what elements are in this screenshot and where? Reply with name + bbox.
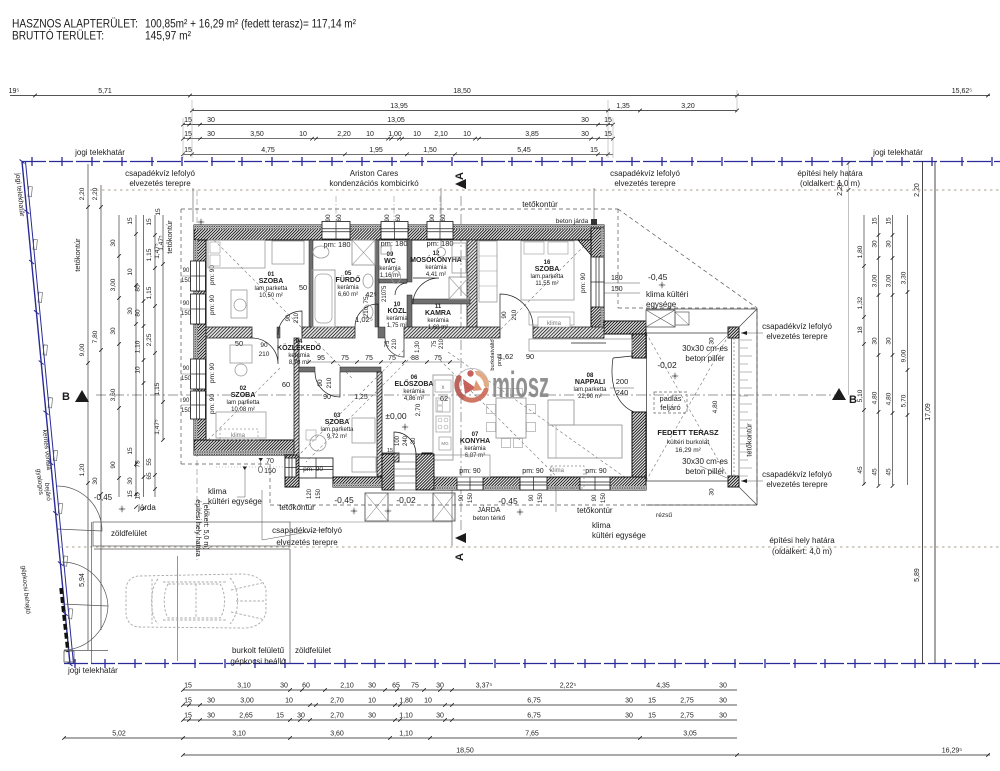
svg-text:30: 30 (127, 477, 134, 485)
svg-text:30: 30 (368, 713, 376, 720)
svg-text:2,70: 2,70 (330, 698, 344, 705)
svg-text:18,50: 18,50 (453, 88, 471, 95)
svg-text:90: 90 (286, 314, 292, 321)
svg-text:16,29⁵: 16,29⁵ (942, 748, 963, 755)
svg-text:ELŐSZOBA: ELŐSZOBA (395, 379, 434, 388)
svg-text:10: 10 (368, 698, 376, 705)
svg-text:90: 90 (260, 342, 268, 349)
svg-text:9,00: 9,00 (79, 343, 86, 356)
svg-text:15,62⁵: 15,62⁵ (952, 88, 973, 95)
svg-text:pm: 90: pm: 90 (585, 468, 607, 475)
svg-text:klima: klima (550, 468, 565, 474)
svg-text:10: 10 (424, 698, 432, 705)
svg-text:45: 45 (872, 468, 879, 476)
svg-text:MOSÓKONYHA: MOSÓKONYHA (410, 255, 462, 264)
svg-text:3,00: 3,00 (240, 698, 254, 705)
svg-text:3,20: 3,20 (681, 103, 695, 110)
svg-text:2,70: 2,70 (330, 713, 344, 720)
svg-text:15: 15 (146, 218, 153, 226)
svg-text:7,65: 7,65 (525, 731, 539, 738)
svg-text:30: 30 (368, 683, 376, 690)
svg-text:10: 10 (135, 366, 142, 374)
svg-text:5,70: 5,70 (901, 394, 908, 407)
svg-text:1,32: 1,32 (857, 296, 864, 309)
svg-text:padlás: padlás (659, 394, 681, 403)
svg-text:50: 50 (299, 283, 307, 292)
svg-text:90: 90 (183, 398, 190, 404)
svg-text:csapadékvíz lefolyó: csapadékvíz lefolyó (125, 169, 195, 178)
svg-text:3,30: 3,30 (901, 271, 908, 284)
svg-text:(oldalkert: 4,0 m): (oldalkert: 4,0 m) (772, 547, 832, 556)
svg-text:csapadékvíz lefolyó: csapadékvíz lefolyó (610, 169, 680, 178)
svg-text:kültéri burkolat: kültéri burkolat (667, 439, 709, 446)
svg-text:5,89: 5,89 (914, 568, 921, 582)
svg-text:2,10: 2,10 (340, 683, 354, 690)
svg-text:60: 60 (440, 214, 447, 222)
svg-text:1,10: 1,10 (135, 340, 142, 353)
svg-text:30x30 cm-es: 30x30 cm-es (682, 344, 728, 353)
svg-text:1,95: 1,95 (369, 147, 383, 154)
svg-text:beton pillér: beton pillér (685, 354, 724, 363)
svg-text:2,70: 2,70 (415, 403, 422, 416)
svg-text:6,75: 6,75 (527, 698, 541, 705)
svg-text:kültéri egysége: kültéri egysége (208, 497, 262, 506)
svg-text:15: 15 (648, 698, 656, 705)
svg-text:15: 15 (590, 147, 598, 154)
svg-text:tetőkontúr: tetőkontúr (73, 238, 82, 272)
svg-text:90: 90 (323, 394, 331, 401)
svg-text:1,68 m²: 1,68 m² (428, 325, 448, 331)
svg-text:10: 10 (463, 131, 471, 138)
svg-text:elvezetés terepre: elvezetés terepre (614, 179, 676, 188)
svg-text:90: 90 (459, 494, 465, 501)
svg-text:15: 15 (184, 698, 192, 705)
svg-text:90: 90 (110, 461, 117, 469)
svg-text:kerámia: kerámia (288, 353, 310, 359)
svg-text:elvezetés terepre: elvezetés terepre (766, 332, 828, 341)
svg-text:150: 150 (181, 376, 192, 382)
svg-text:csapadékvíz lefolyó: csapadékvíz lefolyó (762, 470, 832, 479)
svg-text:KÖZLEKEDŐ: KÖZLEKEDŐ (277, 343, 322, 352)
svg-text:3,05: 3,05 (683, 731, 697, 738)
svg-text:klima: klima (592, 521, 611, 530)
svg-text:15: 15 (155, 208, 162, 216)
svg-text:62: 62 (440, 394, 448, 403)
svg-text:10: 10 (285, 698, 293, 705)
svg-text:8,78 m²: 8,78 m² (289, 360, 309, 366)
svg-text:pm: 90: pm: 90 (209, 394, 216, 414)
svg-text:30: 30 (719, 713, 727, 720)
svg-text:jogi telekhatár: jogi telekhatár (74, 148, 125, 157)
svg-text:5,02: 5,02 (112, 731, 126, 738)
svg-text:3,00: 3,00 (886, 274, 893, 287)
svg-text:30: 30 (625, 713, 633, 720)
svg-text:30: 30 (872, 240, 879, 248)
svg-text:-0,45: -0,45 (94, 493, 113, 502)
svg-text:2,20: 2,20 (79, 187, 86, 200)
svg-text:30: 30 (886, 240, 893, 248)
svg-text:85: 85 (135, 284, 142, 292)
svg-text:30: 30 (436, 713, 444, 720)
svg-text:lam.parketta: lam.parketta (573, 387, 607, 393)
svg-text:1,75 m²: 1,75 m² (387, 323, 407, 329)
svg-text:KÖZL: KÖZL (387, 306, 407, 315)
svg-text:SZOBA: SZOBA (259, 278, 284, 285)
svg-text:75: 75 (385, 340, 391, 347)
svg-text:3,60: 3,60 (330, 731, 344, 738)
svg-text:17,09: 17,09 (925, 403, 932, 421)
svg-text:80: 80 (135, 309, 142, 317)
svg-text:5,10: 5,10 (857, 389, 864, 402)
svg-text:90: 90 (325, 214, 332, 222)
svg-text:90: 90 (384, 214, 391, 222)
svg-text:4,41 m²: 4,41 m² (426, 272, 446, 278)
svg-text:30: 30 (207, 698, 215, 705)
svg-text:210: 210 (259, 351, 270, 358)
svg-text:pm: 90: pm: 90 (209, 363, 216, 383)
svg-text:90: 90 (317, 379, 324, 387)
svg-text:4,75: 4,75 (261, 147, 275, 154)
svg-text:KAMRA: KAMRA (425, 310, 451, 317)
svg-text:klima: klima (547, 321, 562, 327)
svg-text:15: 15 (127, 217, 134, 225)
svg-text:3,00: 3,00 (872, 274, 879, 287)
svg-text:elvezetés terepre: elvezetés terepre (129, 179, 191, 188)
svg-text:A: A (454, 553, 466, 561)
svg-text:6,75: 6,75 (527, 713, 541, 720)
svg-text:18: 18 (857, 326, 864, 334)
svg-text:90: 90 (183, 366, 190, 372)
svg-text:15: 15 (184, 147, 192, 154)
svg-text:210: 210 (439, 338, 445, 349)
svg-text:60: 60 (395, 214, 402, 222)
svg-text:gépkocsi beálló: gépkocsi beálló (230, 657, 286, 666)
svg-text:BRUTTÓ TERÜLET:: BRUTTÓ TERÜLET: (12, 28, 104, 43)
svg-text:19⁵: 19⁵ (9, 88, 20, 95)
svg-text:1,10: 1,10 (399, 731, 413, 738)
svg-text:csapadékvíz lefolyó: csapadékvíz lefolyó (762, 322, 832, 331)
svg-text:210: 210 (294, 312, 300, 323)
svg-text:csapadékvíz lefolyó: csapadékvíz lefolyó (272, 526, 342, 535)
svg-text:90: 90 (526, 352, 534, 361)
svg-text:30: 30 (709, 488, 716, 496)
svg-text:pm: 90: pm: 90 (459, 468, 481, 475)
svg-text:15: 15 (135, 492, 142, 500)
svg-text:60: 60 (282, 380, 290, 389)
svg-text:6,87 m²: 6,87 m² (465, 453, 485, 459)
svg-text:10: 10 (413, 131, 421, 138)
svg-text:tetőkontúr: tetőkontúr (577, 506, 613, 515)
svg-text:150: 150 (181, 408, 192, 414)
svg-text:30: 30 (110, 327, 117, 335)
svg-text:11,55 m²: 11,55 m² (535, 281, 558, 287)
svg-text:15: 15 (184, 713, 192, 720)
svg-text:45: 45 (857, 466, 864, 474)
svg-text:15: 15 (276, 713, 284, 720)
svg-text:240: 240 (616, 388, 629, 397)
svg-text:30: 30 (110, 239, 117, 247)
svg-text:2,75: 2,75 (680, 698, 694, 705)
svg-text:210: 210 (392, 338, 398, 349)
svg-text:építési hely határa: építési hely határa (797, 169, 863, 178)
svg-text:JÁRDA: JÁRDA (478, 505, 501, 514)
svg-text:90: 90 (183, 268, 190, 274)
svg-text:30: 30 (709, 337, 716, 345)
svg-text:4,80: 4,80 (872, 391, 879, 404)
svg-text:kerámia: kerámia (337, 285, 359, 291)
svg-text:120: 120 (307, 488, 313, 499)
svg-text:42⁵: 42⁵ (365, 290, 376, 299)
svg-text:95: 95 (317, 355, 325, 362)
svg-text:13,05: 13,05 (387, 117, 405, 124)
svg-text:240: 240 (403, 435, 409, 446)
svg-text:A: A (454, 172, 466, 180)
svg-text:9,72 m²: 9,72 m² (327, 434, 347, 440)
svg-text:30: 30 (127, 307, 134, 315)
svg-text:pm: 90: pm: 90 (522, 468, 544, 475)
svg-text:45: 45 (886, 468, 893, 476)
svg-text:30: 30 (719, 698, 727, 705)
svg-text:15: 15 (886, 217, 893, 225)
svg-text:30: 30 (207, 713, 215, 720)
svg-text:klima kültéri: klima kültéri (646, 290, 688, 299)
svg-text:-0,45: -0,45 (648, 272, 668, 282)
svg-text:lam parketta: lam parketta (226, 400, 260, 406)
svg-text:30: 30 (886, 337, 893, 345)
svg-text:2,75: 2,75 (680, 713, 694, 720)
svg-text:210: 210 (382, 291, 388, 302)
svg-text:75: 75 (411, 683, 419, 690)
svg-text:30: 30 (581, 117, 589, 124)
svg-text:15: 15 (127, 490, 134, 498)
svg-text:FEDETT TERASZ: FEDETT TERASZ (657, 428, 719, 437)
svg-text:építési hely határa: építési hely határa (194, 499, 201, 556)
svg-text:MG: MG (441, 441, 449, 446)
svg-text:5,45: 5,45 (517, 147, 531, 154)
svg-text:4,86 m²: 4,86 m² (404, 396, 424, 402)
svg-text:75: 75 (432, 340, 438, 347)
svg-text:10: 10 (366, 131, 374, 138)
svg-text:egysége: egysége (646, 300, 677, 309)
svg-text:55: 55 (146, 458, 153, 466)
svg-text:30x30 cm-es: 30x30 cm-es (682, 457, 728, 466)
svg-text:1,47⁵: 1,47⁵ (154, 419, 161, 435)
svg-text:lam parketta: lam parketta (254, 286, 288, 292)
svg-text:18,50: 18,50 (456, 748, 474, 755)
svg-text:15: 15 (872, 217, 879, 225)
svg-text:180: 180 (611, 275, 623, 282)
svg-text:feljáró: feljáró (660, 403, 680, 412)
svg-text:65: 65 (146, 472, 153, 480)
svg-text:10: 10 (127, 268, 134, 276)
svg-text:-0,45: -0,45 (498, 496, 518, 506)
svg-text:1,80: 1,80 (399, 698, 413, 705)
svg-text:150: 150 (601, 492, 607, 503)
svg-text:150: 150 (264, 468, 276, 475)
svg-text:200: 200 (616, 377, 629, 386)
svg-text:90: 90 (592, 494, 598, 501)
svg-text:elvezetés terepre: elvezetés terepre (766, 480, 828, 489)
svg-text:kerámia: kerámia (403, 389, 425, 395)
svg-text:B: B (849, 394, 857, 406)
svg-text:3,37⁵: 3,37⁵ (476, 683, 493, 690)
svg-text:FÜRDŐ: FÜRDŐ (336, 275, 361, 284)
svg-text:3,10: 3,10 (232, 731, 246, 738)
svg-text:klima: klima (208, 487, 227, 496)
svg-text:kerámia: kerámia (425, 265, 447, 271)
svg-text:90: 90 (501, 311, 508, 319)
svg-text:13,95: 13,95 (390, 103, 408, 110)
svg-text:lam.parketta: lam.parketta (530, 274, 564, 280)
svg-text:2,65: 2,65 (239, 713, 253, 720)
svg-text:(oldalkert: 1,0 m): (oldalkert: 1,0 m) (800, 179, 860, 188)
svg-text:90: 90 (183, 301, 190, 307)
svg-text:építési hely határa: építési hely határa (769, 536, 835, 545)
svg-text:22,90 m²: 22,90 m² (578, 394, 602, 400)
svg-text:60: 60 (302, 683, 310, 690)
svg-text:pm: 180: pm: 180 (426, 239, 453, 248)
svg-text:kültéri egysége: kültéri egysége (592, 531, 646, 540)
svg-text:3,00: 3,00 (110, 278, 117, 291)
svg-text:30: 30 (207, 131, 215, 138)
svg-text:5,94: 5,94 (79, 573, 86, 587)
svg-text:2,22⁵: 2,22⁵ (560, 683, 577, 690)
svg-text:30: 30 (719, 683, 727, 690)
svg-text:30: 30 (411, 437, 417, 444)
svg-text:2,20: 2,20 (92, 187, 99, 200)
svg-text:zöldfelület: zöldfelület (111, 529, 148, 538)
svg-text:x: x (442, 385, 445, 391)
svg-text:1,10: 1,10 (399, 713, 413, 720)
svg-text:pm: 90: pm: 90 (580, 273, 587, 293)
svg-text:30: 30 (280, 683, 288, 690)
svg-text:1,35: 1,35 (616, 103, 630, 110)
svg-text:10,50 m²: 10,50 m² (259, 293, 283, 299)
svg-text:100: 100 (395, 435, 401, 446)
svg-text:75: 75 (434, 355, 442, 362)
svg-text:150: 150 (468, 492, 474, 503)
svg-text:88: 88 (411, 355, 419, 362)
svg-text:75: 75 (382, 285, 388, 292)
svg-text:3,10: 3,10 (237, 683, 251, 690)
svg-text:4,35: 4,35 (656, 683, 670, 690)
svg-text:30: 30 (581, 131, 589, 138)
svg-text:miosz: miosz (492, 366, 549, 405)
svg-text:rézsű: rézsű (656, 512, 672, 519)
svg-text:kondenzációs kombicirkó: kondenzációs kombicirkó (329, 179, 419, 188)
svg-text:jogi telekhatár: jogi telekhatár (67, 666, 118, 675)
svg-text:jogi telekhatár: jogi telekhatár (872, 148, 923, 157)
svg-text:30: 30 (625, 698, 633, 705)
svg-text:30: 30 (207, 117, 215, 124)
svg-text:tetőkontúr: tetőkontúr (165, 220, 174, 254)
svg-text:16,29 m²: 16,29 m² (675, 447, 701, 454)
svg-text:lam.parketta: lam.parketta (320, 427, 354, 433)
svg-text:tetőkontúr: tetőkontúr (522, 200, 558, 209)
svg-text:30: 30 (297, 713, 305, 720)
svg-text:65: 65 (392, 683, 400, 690)
svg-text:150: 150 (181, 278, 192, 284)
svg-text:15: 15 (648, 713, 656, 720)
svg-text:zöldfelület: zöldfelület (295, 646, 332, 655)
svg-text:30: 30 (872, 337, 879, 345)
svg-text:járda: járda (137, 503, 156, 512)
svg-text:burkolt felületű: burkolt felületű (232, 646, 285, 655)
svg-text:3,85: 3,85 (525, 131, 539, 138)
svg-text:1,00: 1,00 (388, 131, 402, 138)
svg-text:15: 15 (127, 447, 134, 455)
svg-text:-0,02: -0,02 (657, 360, 677, 370)
svg-text:3,50: 3,50 (250, 131, 264, 138)
svg-text:15: 15 (184, 683, 192, 690)
svg-text:tetőkontúr: tetőkontúr (279, 503, 315, 512)
svg-text:75: 75 (135, 460, 142, 468)
svg-text:-0,45: -0,45 (334, 495, 354, 505)
svg-text:3,60: 3,60 (110, 388, 117, 401)
svg-text:90: 90 (429, 214, 436, 222)
svg-text:NAPPALI: NAPPALI (575, 379, 605, 386)
svg-text:(előkert: 5,0 m): (előkert: 5,0 m) (202, 502, 209, 549)
svg-text:1,80: 1,80 (857, 245, 864, 258)
svg-text:150: 150 (611, 286, 623, 293)
svg-text:10: 10 (299, 131, 307, 138)
svg-text:pm: 90: pm: 90 (209, 295, 216, 315)
svg-text:klima: klima (231, 433, 246, 439)
svg-text:beton járda: beton járda (556, 218, 589, 225)
svg-text:SZOBA: SZOBA (231, 392, 256, 399)
svg-text:SZOBA: SZOBA (535, 266, 560, 273)
svg-text:kerámia: kerámia (464, 446, 486, 452)
svg-text:75: 75 (341, 355, 349, 362)
svg-text:145,97 m²: 145,97 m² (145, 29, 191, 43)
svg-text:60: 60 (336, 214, 343, 222)
svg-text:-0,02: -0,02 (396, 495, 416, 505)
svg-text:kerámia: kerámia (386, 316, 408, 322)
svg-text:Ariston Cares: Ariston Cares (350, 169, 398, 178)
svg-text:6,60 m²: 6,60 m² (338, 292, 358, 298)
svg-text:B: B (62, 391, 70, 403)
svg-text:1,30: 1,30 (415, 341, 421, 353)
svg-text:75: 75 (388, 355, 396, 362)
svg-text:4,80: 4,80 (712, 400, 719, 413)
svg-text:1,16 m²: 1,16 m² (380, 273, 400, 279)
svg-text:pm: 180: pm: 180 (380, 239, 407, 248)
svg-text:4,80: 4,80 (886, 392, 893, 405)
svg-text:75: 75 (365, 355, 373, 362)
svg-text:50: 50 (235, 339, 243, 348)
svg-text:KONYHA: KONYHA (460, 438, 490, 445)
svg-text:1,62: 1,62 (499, 352, 514, 361)
svg-text:2,20: 2,20 (337, 131, 351, 138)
svg-text:90: 90 (529, 494, 535, 501)
svg-text:15: 15 (184, 117, 192, 124)
svg-text:70: 70 (266, 458, 274, 465)
svg-text:WC: WC (384, 258, 396, 265)
svg-text:30: 30 (436, 683, 444, 690)
svg-text:beton térkő: beton térkő (473, 515, 506, 522)
svg-text:150: 150 (181, 311, 192, 317)
svg-text:kerámia: kerámia (427, 318, 449, 324)
svg-text:±0,00: ±0,00 (385, 411, 406, 421)
svg-text:7,80: 7,80 (92, 330, 99, 343)
svg-text:9,00: 9,00 (901, 349, 908, 362)
svg-text:15: 15 (387, 448, 393, 454)
svg-text:5,71: 5,71 (98, 88, 112, 95)
svg-text:1,15: 1,15 (154, 382, 161, 395)
svg-text:2,10: 2,10 (434, 131, 448, 138)
svg-text:210: 210 (511, 309, 518, 320)
svg-text:15: 15 (184, 131, 192, 138)
